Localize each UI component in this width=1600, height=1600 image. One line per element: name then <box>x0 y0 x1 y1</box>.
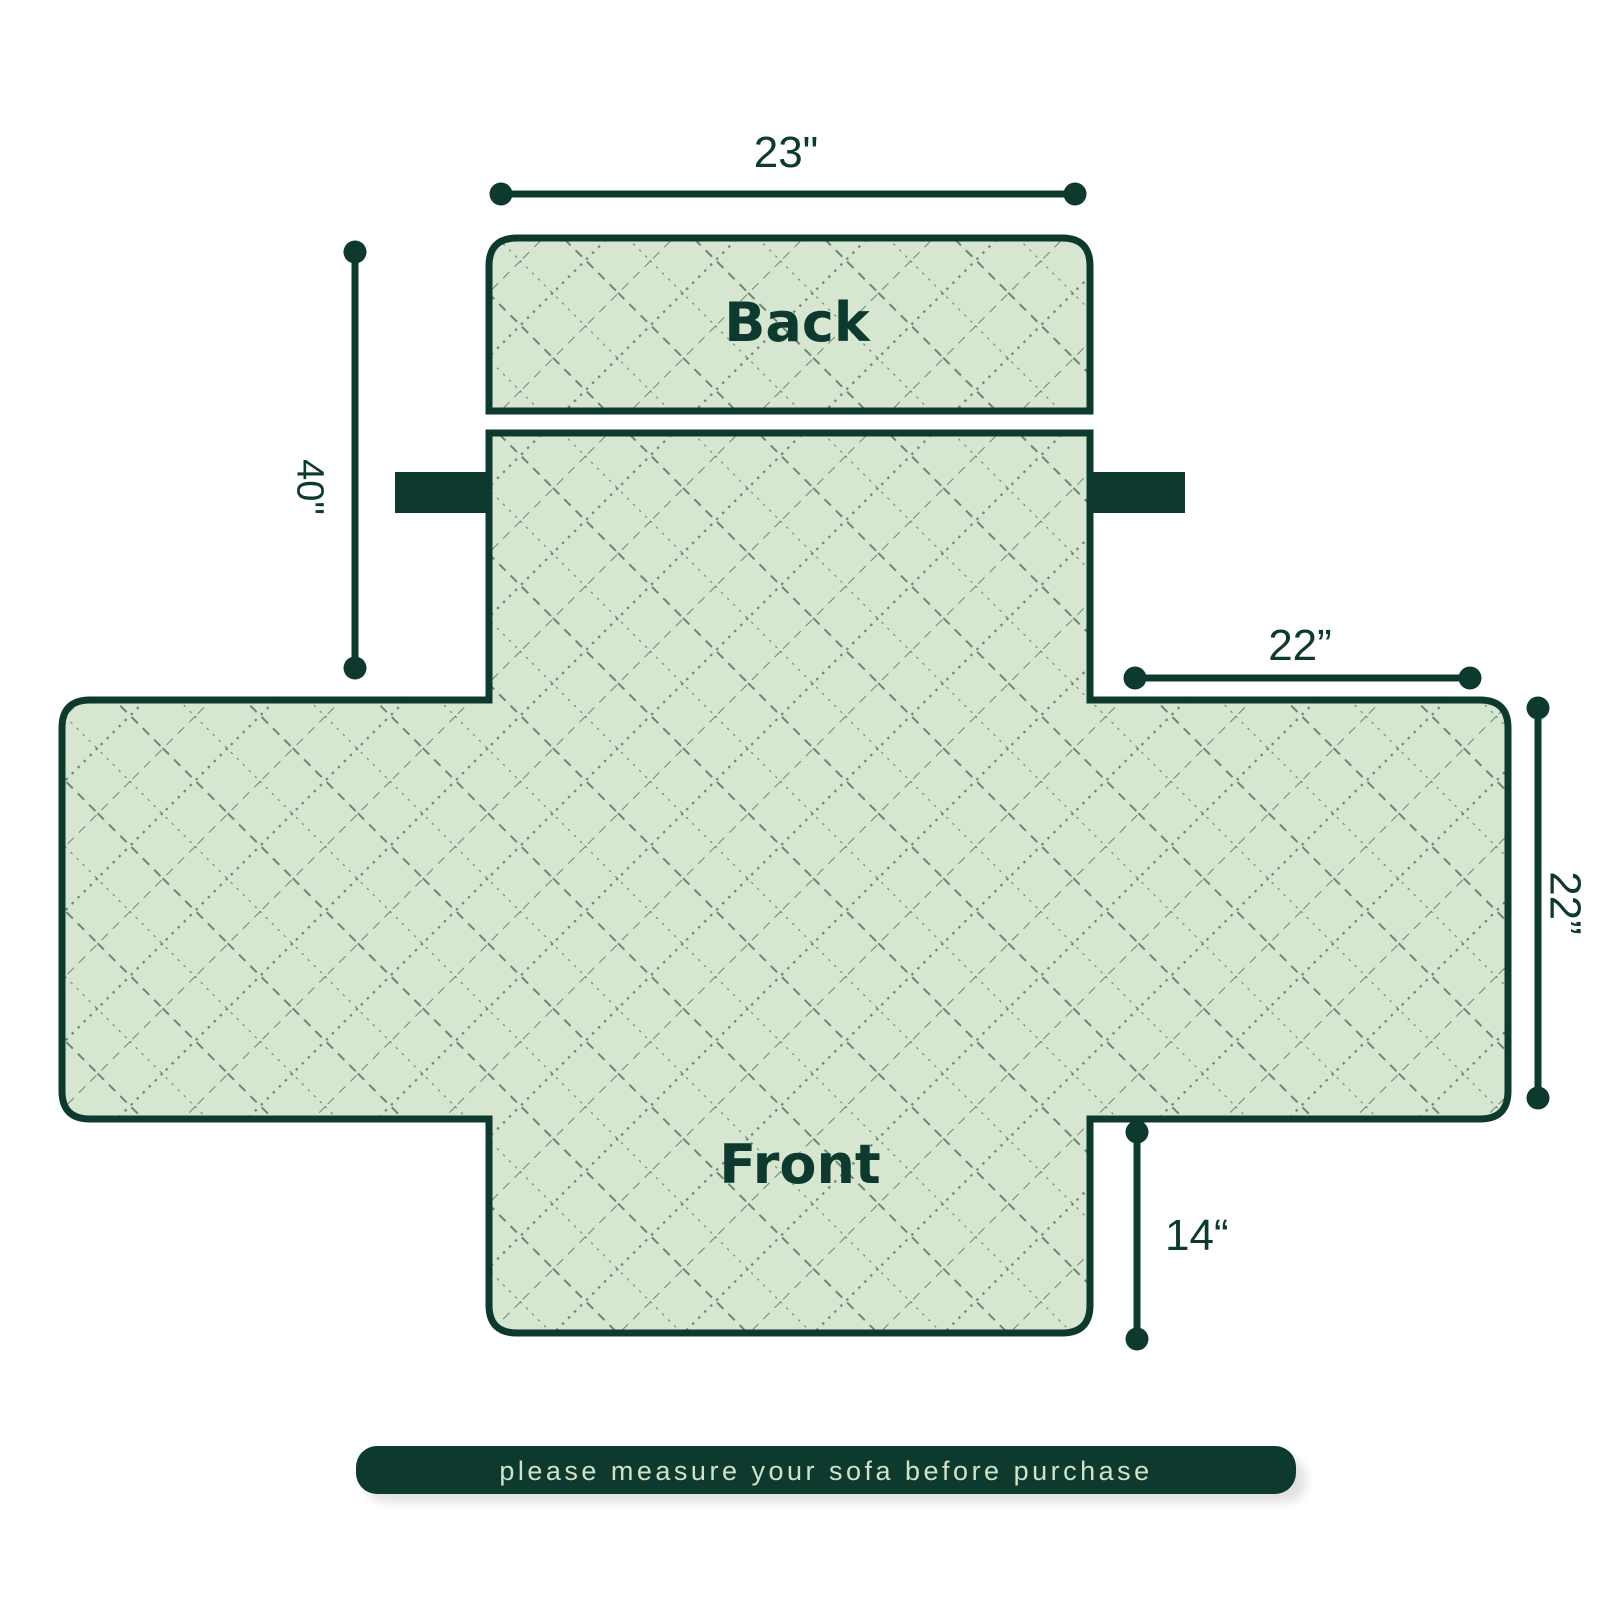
back-label: Back <box>724 291 871 354</box>
dimension-arm-depth: 22” <box>1527 697 1590 1110</box>
front-drop-value: 14“ <box>1165 1211 1229 1260</box>
measure-notice-banner: please measure your sofa before purchase <box>356 1446 1306 1502</box>
arm-width-value: 22” <box>1268 621 1332 670</box>
dimension-arm-width: 22” <box>1124 621 1482 690</box>
arm-depth-value: 22” <box>1541 871 1590 935</box>
side-height-value: 40" <box>289 459 331 515</box>
dim-endpoint-dot <box>490 183 513 206</box>
right-strap <box>1089 472 1185 513</box>
sofa-cover-measurement-diagram: Back Front 23" 40" 22” <box>0 0 1600 1600</box>
dim-endpoint-dot <box>344 657 367 680</box>
dim-endpoint-dot <box>1527 697 1550 720</box>
dimension-side-height: 40" <box>289 241 367 680</box>
seat-cross-shape <box>62 433 1508 1333</box>
dim-endpoint-dot <box>1126 1328 1149 1351</box>
back-width-value: 23" <box>754 128 819 177</box>
dim-endpoint-dot <box>344 241 367 264</box>
dimension-front-drop: 14“ <box>1126 1121 1229 1351</box>
dim-endpoint-dot <box>1459 667 1482 690</box>
back-section: Back <box>489 238 1090 411</box>
seat-section: Front <box>62 433 1508 1333</box>
dimension-back-width: 23" <box>490 128 1087 206</box>
diagram-canvas: Back Front 23" 40" 22” <box>0 0 1600 1600</box>
dim-endpoint-dot <box>1126 1121 1149 1144</box>
left-strap <box>395 472 490 513</box>
banner-text: please measure your sofa before purchase <box>499 1456 1152 1486</box>
dim-endpoint-dot <box>1527 1087 1550 1110</box>
dim-endpoint-dot <box>1064 183 1087 206</box>
dim-endpoint-dot <box>1124 667 1147 690</box>
front-label: Front <box>719 1133 880 1196</box>
